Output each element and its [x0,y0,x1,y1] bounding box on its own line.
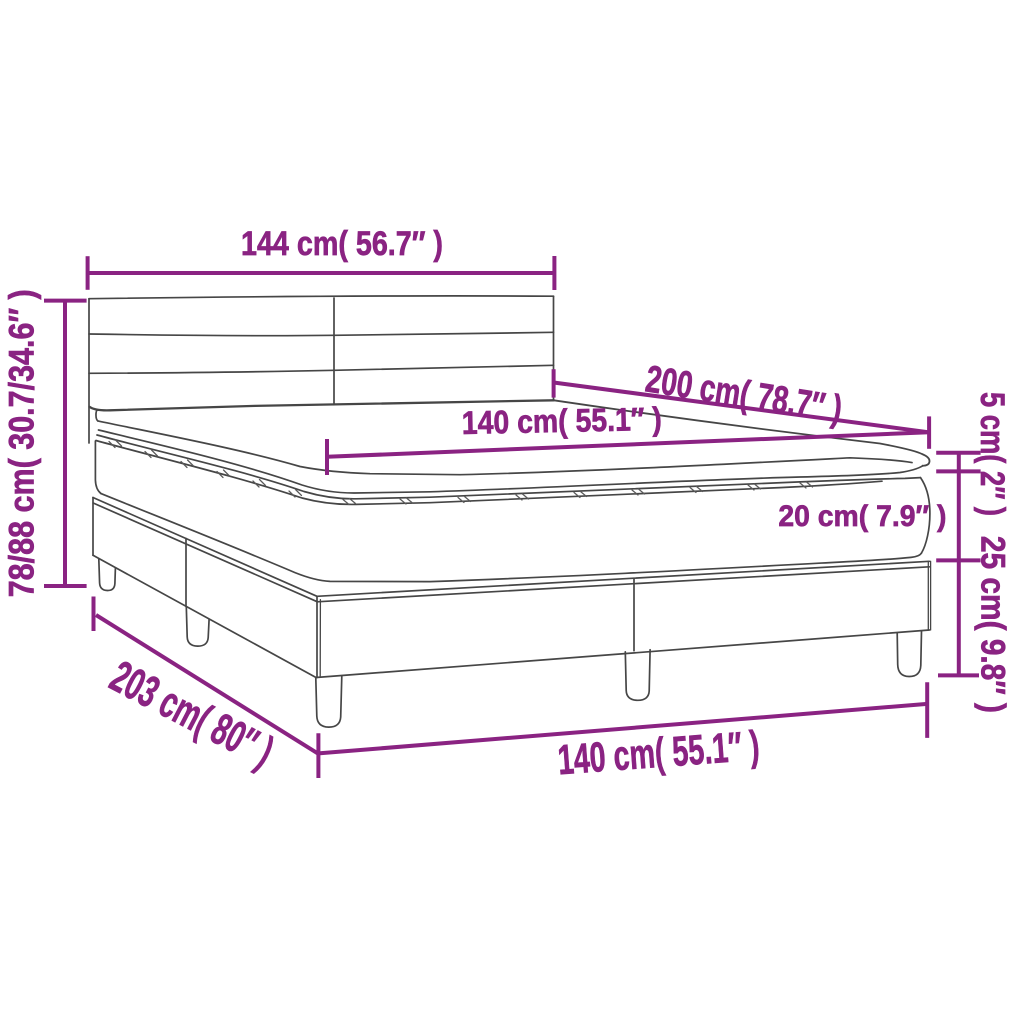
svg-text:5 cm( 2″ ): 5 cm( 2″ ) [973,392,1011,516]
svg-text:140 cm( 55.1″ ): 140 cm( 55.1″ ) [461,401,662,441]
svg-text:78/88 cm( 30.7/34.6″ ): 78/88 cm( 30.7/34.6″ ) [3,289,42,597]
svg-text:25 cm( 9.8″ ): 25 cm( 9.8″ ) [974,536,1012,713]
svg-text:20 cm( 7.9″ ): 20 cm( 7.9″ ) [778,500,946,533]
svg-text:144 cm( 56.7″ ): 144 cm( 56.7″ ) [241,225,443,263]
